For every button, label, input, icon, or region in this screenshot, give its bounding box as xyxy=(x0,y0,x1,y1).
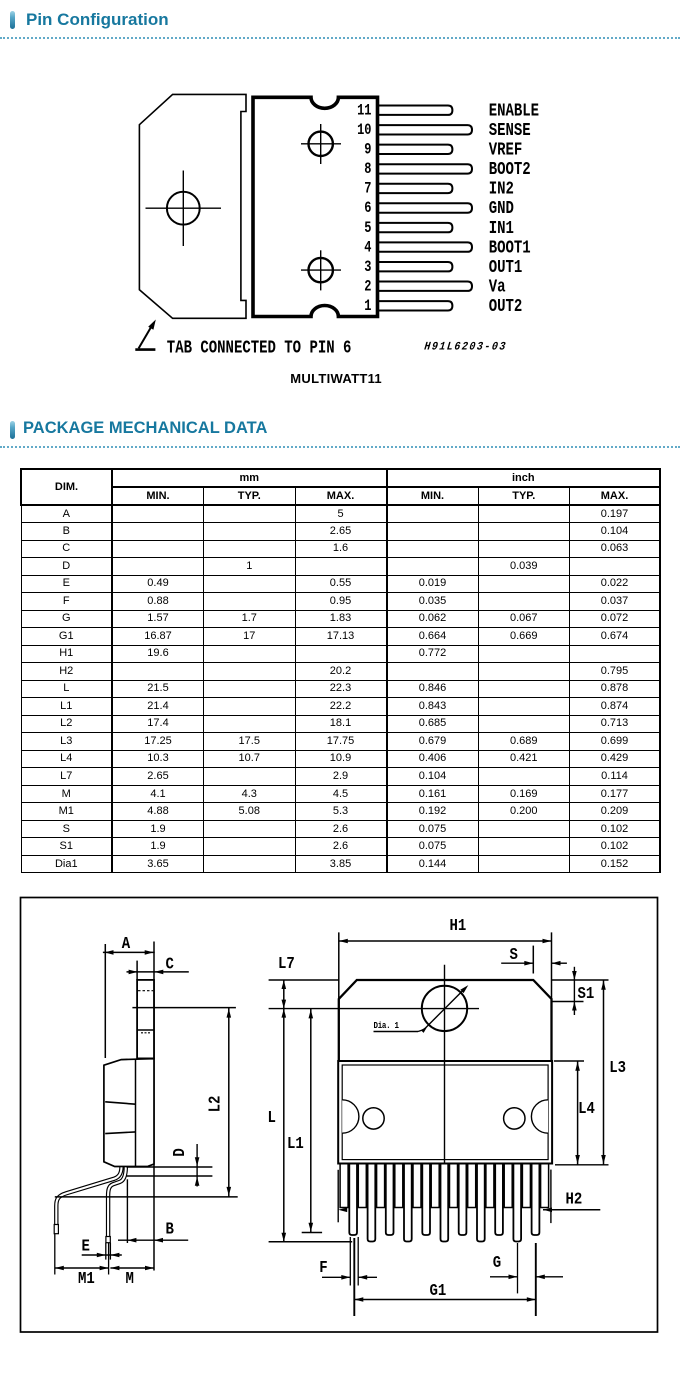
svg-text:MULTIWATT11: MULTIWATT11 xyxy=(290,371,382,386)
svg-text:BOOT1: BOOT1 xyxy=(489,237,531,258)
svg-text:BOOT2: BOOT2 xyxy=(489,158,531,179)
svg-text:M: M xyxy=(126,1269,134,1289)
svg-text:G: G xyxy=(493,1253,501,1273)
svg-text:5: 5 xyxy=(364,219,371,237)
svg-text:E: E xyxy=(82,1236,90,1256)
svg-text:3: 3 xyxy=(364,259,371,277)
svg-text:4: 4 xyxy=(364,239,371,257)
svg-text:10: 10 xyxy=(357,122,371,140)
svg-text:L4: L4 xyxy=(578,1099,595,1119)
svg-text:L1: L1 xyxy=(287,1134,304,1154)
svg-text:IN2: IN2 xyxy=(489,178,514,199)
svg-text:G1: G1 xyxy=(430,1281,447,1301)
svg-text:OUT1: OUT1 xyxy=(489,256,523,277)
svg-text:L2: L2 xyxy=(205,1096,225,1113)
svg-text:SENSE: SENSE xyxy=(489,119,531,140)
svg-text:2: 2 xyxy=(364,278,371,296)
svg-text:TAB CONNECTED TO PIN 6: TAB CONNECTED TO PIN 6 xyxy=(167,337,352,358)
svg-text:B: B xyxy=(166,1219,174,1239)
svg-text:11: 11 xyxy=(357,102,371,120)
svg-text:OUT2: OUT2 xyxy=(489,295,523,316)
svg-text:VREF: VREF xyxy=(489,139,523,160)
svg-text:A: A xyxy=(122,934,131,954)
svg-text:L: L xyxy=(268,1108,276,1128)
svg-text:S: S xyxy=(510,945,518,965)
svg-text:S1: S1 xyxy=(578,984,595,1004)
svg-text:L3: L3 xyxy=(609,1058,626,1078)
svg-text:Dia. 1: Dia. 1 xyxy=(374,1020,399,1031)
svg-text:M1: M1 xyxy=(78,1269,95,1289)
svg-text:L7: L7 xyxy=(278,954,295,974)
svg-text:D: D xyxy=(170,1148,190,1156)
svg-text:GND: GND xyxy=(489,198,514,219)
svg-text:H1: H1 xyxy=(450,916,467,936)
svg-text:C: C xyxy=(166,954,174,974)
svg-text:ENABLE: ENABLE xyxy=(489,100,540,121)
svg-text:1: 1 xyxy=(364,298,371,316)
svg-text:H2: H2 xyxy=(566,1189,583,1209)
svg-text:6: 6 xyxy=(364,200,371,218)
svg-text:F: F xyxy=(319,1258,327,1278)
svg-text:Va: Va xyxy=(489,276,506,297)
svg-text:H91L6203-03: H91L6203-03 xyxy=(423,341,507,354)
svg-text:8: 8 xyxy=(364,161,371,179)
svg-text:9: 9 xyxy=(364,141,371,159)
svg-text:7: 7 xyxy=(364,180,371,198)
svg-text:IN1: IN1 xyxy=(489,217,514,238)
